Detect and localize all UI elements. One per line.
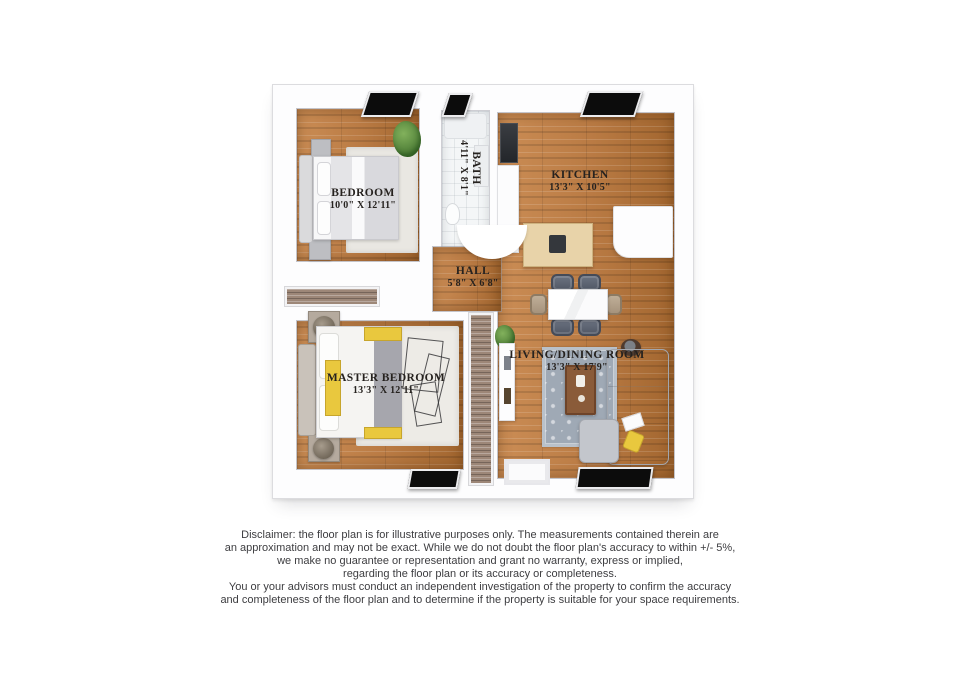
- hall-closet-shelf: [285, 287, 379, 306]
- lamp: [313, 438, 334, 459]
- disclaimer-line: regarding the floor plan or its accuracy…: [0, 568, 960, 581]
- pillow: [317, 201, 331, 235]
- island-sink: [549, 235, 566, 253]
- kitchen-right-counter: [613, 206, 673, 258]
- room-dims: 13'3" X 17'9": [509, 362, 644, 373]
- room-label-kitchen: KITCHEN 13'3" X 10'5": [549, 169, 610, 193]
- dining-chair: [606, 294, 622, 315]
- kitchen-window: [580, 91, 643, 117]
- disclaimer-line: and completeness of the floor plan and t…: [0, 594, 960, 607]
- sofa-chaise: [579, 419, 619, 463]
- room-name: LIVING/DINING ROOM: [509, 349, 644, 361]
- plant: [393, 121, 421, 157]
- room-label-bedroom: BEDROOM 10'0" X 12'11": [330, 187, 396, 211]
- room-label-living-dining: LIVING/DINING ROOM 13'3" X 17'9": [509, 349, 644, 373]
- table-decor: [576, 375, 585, 387]
- floor-plan: BEDROOM 10'0" X 12'11" BATH 4'11" X 8'1"…: [272, 84, 694, 499]
- master-nightstand: [308, 434, 340, 462]
- room-name: KITCHEN: [549, 169, 610, 181]
- yellow-blanket: [364, 327, 402, 341]
- stove: [500, 123, 518, 163]
- disclaimer-line: You or your advisors must conduct an ind…: [0, 581, 960, 594]
- bedroom-bed-headboard: [299, 155, 313, 243]
- living-room-window: [575, 467, 653, 489]
- room-dims: 5'8" X 6'8": [447, 278, 498, 289]
- room-label-bath: BATH 4'11" X 8'1": [458, 140, 482, 196]
- console-frame: [504, 388, 511, 404]
- pillow: [317, 162, 331, 196]
- room-name: BATH: [470, 140, 482, 196]
- dining-chair: [530, 294, 547, 315]
- room-dims: 13'3" X 10'5": [549, 182, 610, 193]
- yellow-blanket: [364, 427, 402, 439]
- bedroom-window: [361, 91, 419, 117]
- room-dims: 4'11" X 8'1": [458, 140, 469, 196]
- table-decor: [578, 395, 585, 402]
- dining-chair: [551, 318, 574, 336]
- disclaimer-line: Disclaimer: the floor plan is for illust…: [0, 529, 960, 542]
- disclaimer-line: an approximation and may not be exact. W…: [0, 542, 960, 555]
- dining-chair: [578, 318, 601, 336]
- entry-door-mat: [504, 459, 550, 485]
- master-bedroom-window: [407, 469, 461, 489]
- room-label-master-bedroom: MASTER BEDROOM 13'3" X 12'11": [327, 372, 445, 396]
- kitchen-island: [523, 223, 593, 267]
- floor-plan-page: BEDROOM 10'0" X 12'11" BATH 4'11" X 8'1"…: [0, 0, 960, 679]
- room-dims: 13'3" X 12'11": [327, 385, 445, 396]
- room-dims: 10'0" X 12'11": [330, 200, 396, 211]
- disclaimer-line: we make no guarantee or representation a…: [0, 555, 960, 568]
- vertical-closet-shelf: [469, 313, 493, 485]
- room-name: MASTER BEDROOM: [327, 372, 445, 384]
- room-label-hall: HALL 5'8" X 6'8": [447, 265, 498, 289]
- dining-table: [548, 289, 608, 320]
- room-name: HALL: [447, 265, 498, 277]
- master-bed-headboard: [298, 344, 316, 436]
- room-name: BEDROOM: [330, 187, 396, 199]
- disclaimer: Disclaimer: the floor plan is for illust…: [0, 529, 960, 606]
- toilet: [445, 203, 460, 225]
